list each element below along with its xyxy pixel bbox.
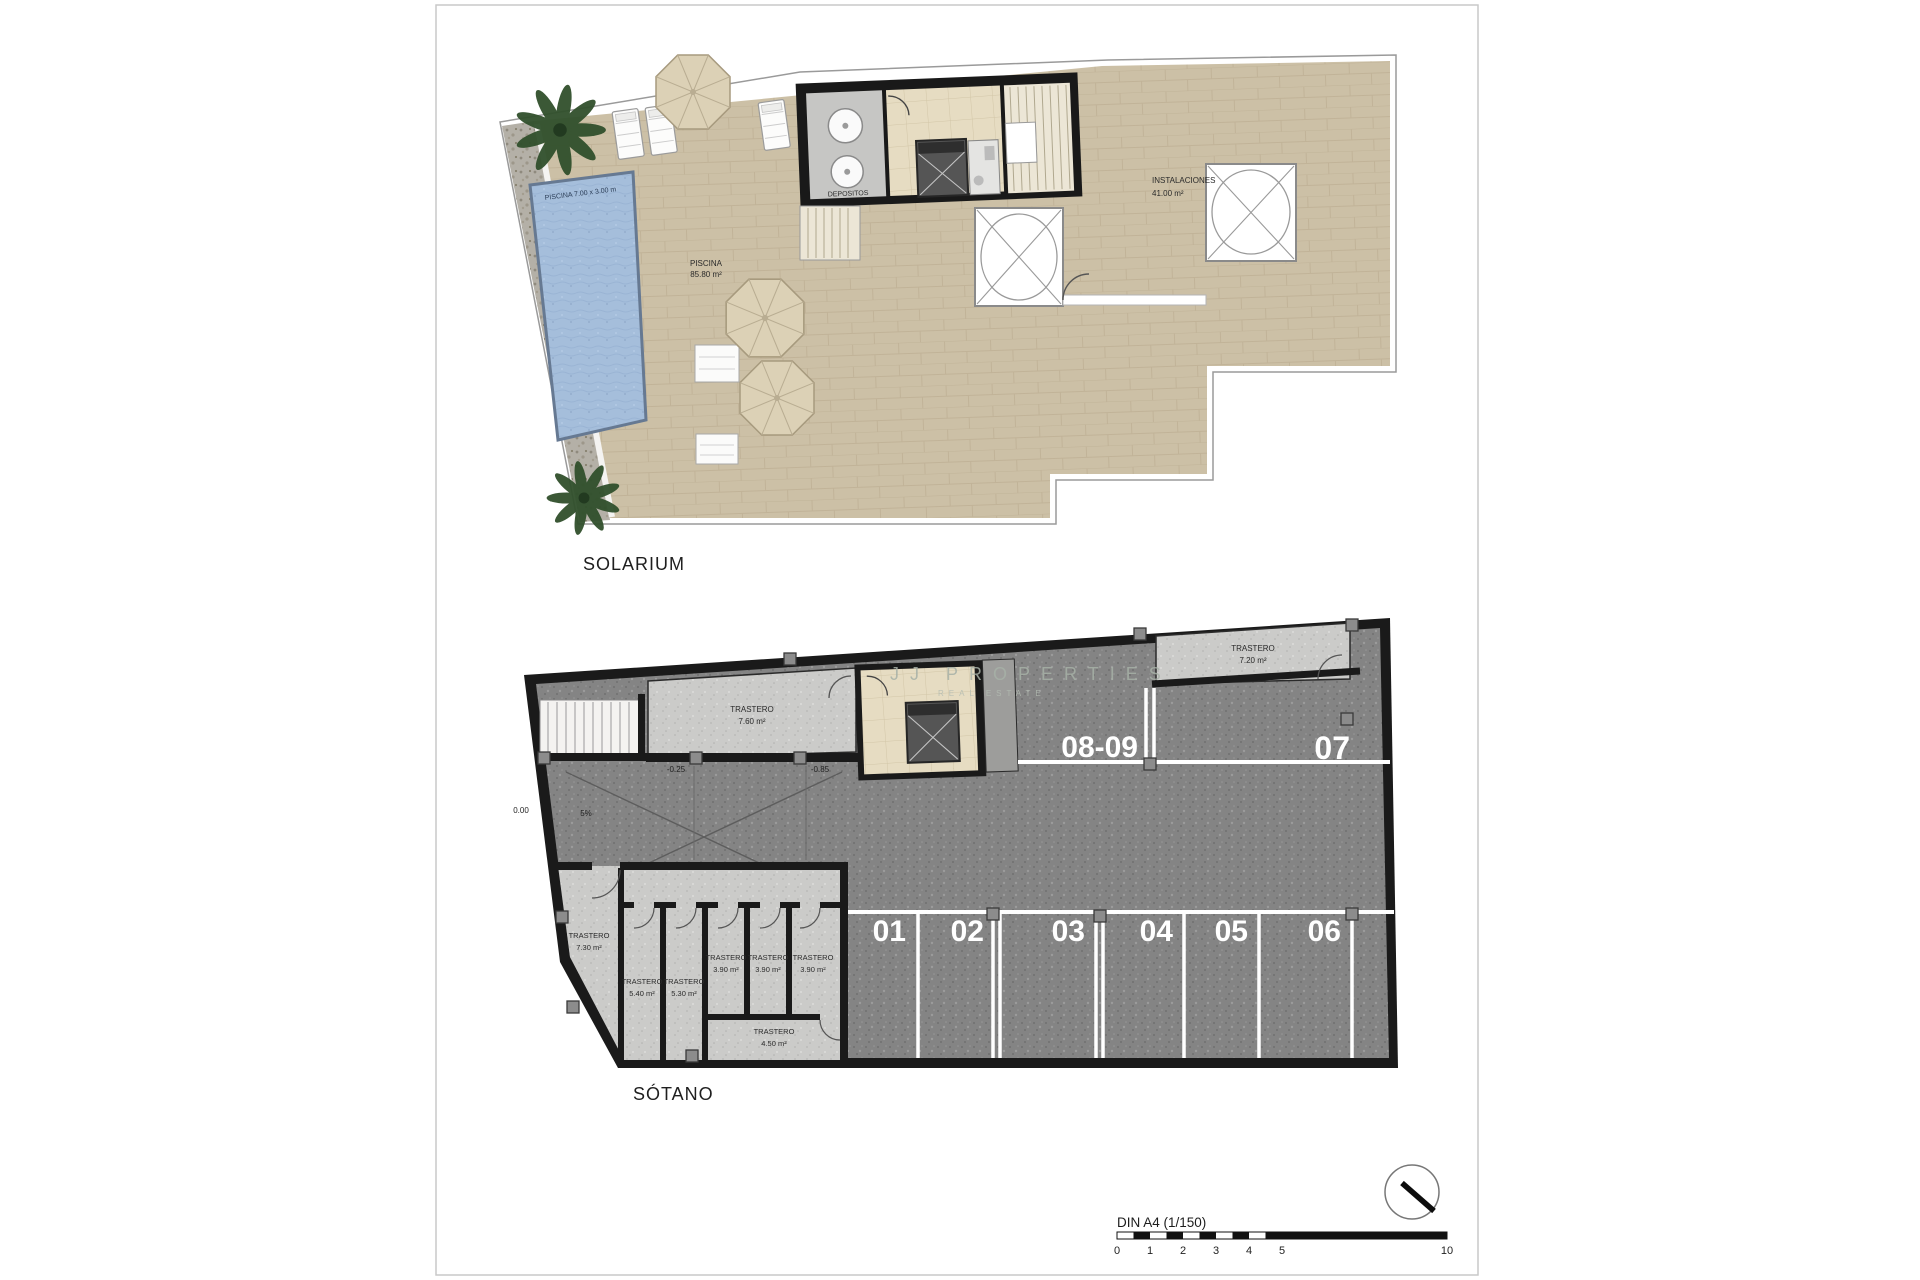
parking-space-07-label: 07 bbox=[1314, 730, 1350, 766]
basement-stairs bbox=[538, 694, 646, 761]
storage-room-area: 3.90 m² bbox=[800, 965, 826, 974]
sotano-plan-title: SÓTANO bbox=[633, 1083, 714, 1104]
storage-room-area: 5.30 m² bbox=[671, 989, 697, 998]
scale-tick: 2 bbox=[1180, 1245, 1186, 1257]
storage-room-name: TRASTERO bbox=[664, 977, 705, 986]
roof-core: DEPOSITOS bbox=[796, 72, 1083, 207]
pool-area-value-label: 85.80 m² bbox=[690, 270, 722, 279]
storage-room-area: 7.30 m² bbox=[576, 943, 602, 952]
storage-room-area: 7.20 m² bbox=[1239, 656, 1266, 665]
storage-room-area: 4.50 m² bbox=[761, 1039, 787, 1048]
scale-tick: 1 bbox=[1147, 1245, 1153, 1257]
tank-room: DEPOSITOS bbox=[806, 90, 886, 199]
storage-room-top: TRASTERO 7.60 m² bbox=[646, 668, 860, 762]
scale-tick: 10 bbox=[1441, 1245, 1453, 1257]
parking-space-03-label: 03 bbox=[1052, 915, 1085, 948]
level-mid-label: -0.25 bbox=[667, 765, 686, 774]
core-stairs bbox=[1004, 83, 1074, 194]
wc-room bbox=[968, 140, 1000, 195]
pool-area-name-label: PISCINA bbox=[690, 259, 723, 268]
scale-tick: 0 bbox=[1114, 1245, 1120, 1257]
parking-space-06-label: 06 bbox=[1308, 915, 1341, 948]
storage-room-area: 5.40 m² bbox=[629, 989, 655, 998]
sotano-plan: TRASTERO 7.60 m² TRASTERO 7.20 m² bbox=[513, 618, 1398, 1104]
storage-room-name: TRASTERO bbox=[793, 953, 834, 962]
ramp-slope-label: 5% bbox=[580, 809, 592, 818]
parking-space-02-label: 02 bbox=[951, 915, 984, 948]
storage-room-name: TRASTERO bbox=[622, 977, 663, 986]
storage-room-name: TRASTERO bbox=[706, 953, 747, 962]
parasol bbox=[740, 361, 814, 435]
scale-tick: 5 bbox=[1279, 1245, 1285, 1257]
storage-room-area: 3.90 m² bbox=[713, 965, 739, 974]
storage-room-area: 7.60 m² bbox=[738, 717, 765, 726]
elevator bbox=[916, 139, 968, 197]
stair-landing bbox=[1005, 122, 1037, 163]
parking-space-01-label: 01 bbox=[873, 915, 906, 948]
solarium-plan-title: SOLARIUM bbox=[583, 554, 685, 574]
floorplan-page: PISCINA 7.00 x 3.00 m PISCINA 85.80 m² bbox=[0, 0, 1920, 1280]
scale-bar-label: DIN A4 (1/150) bbox=[1117, 1215, 1206, 1230]
low-wall-band bbox=[1063, 295, 1206, 305]
level-entry-label: 0.00 bbox=[513, 806, 529, 815]
level-low-label: -0.85 bbox=[811, 765, 830, 774]
floorplan-drawing: PISCINA 7.00 x 3.00 m PISCINA 85.80 m² bbox=[0, 0, 1920, 1280]
storage-room-name: TRASTERO bbox=[754, 1027, 795, 1036]
vent-shaft bbox=[975, 208, 1063, 306]
scale-tick: 4 bbox=[1246, 1245, 1252, 1257]
north-indicator bbox=[1385, 1165, 1439, 1219]
terrace-stairs bbox=[800, 206, 860, 260]
vent-shaft bbox=[1206, 164, 1296, 261]
parking-space-04-label: 04 bbox=[1140, 915, 1174, 948]
storage-room-name: TRASTERO bbox=[569, 931, 610, 940]
parasol bbox=[726, 279, 804, 357]
scale-tick: 3 bbox=[1213, 1245, 1219, 1257]
elevator bbox=[906, 701, 960, 763]
parking-space-05-label: 05 bbox=[1215, 915, 1248, 948]
storage-room-name: TRASTERO bbox=[748, 953, 789, 962]
parasol bbox=[656, 55, 730, 129]
scale-bar-segments bbox=[1134, 1232, 1448, 1239]
parking-space-08-09-label: 08-09 bbox=[1061, 731, 1138, 764]
installations-name-label: INSTALACIONES bbox=[1152, 176, 1215, 185]
watermark-subtext: REAL ESTATE bbox=[938, 689, 1046, 698]
storage-room-area: 3.90 m² bbox=[755, 965, 781, 974]
watermark-text: JJ PROPERTIES bbox=[890, 664, 1172, 684]
storage-room-name: TRASTERO bbox=[730, 705, 774, 714]
storage-room-name: TRASTERO bbox=[1231, 644, 1275, 653]
installations-area-label: 41.00 m² bbox=[1152, 189, 1184, 198]
